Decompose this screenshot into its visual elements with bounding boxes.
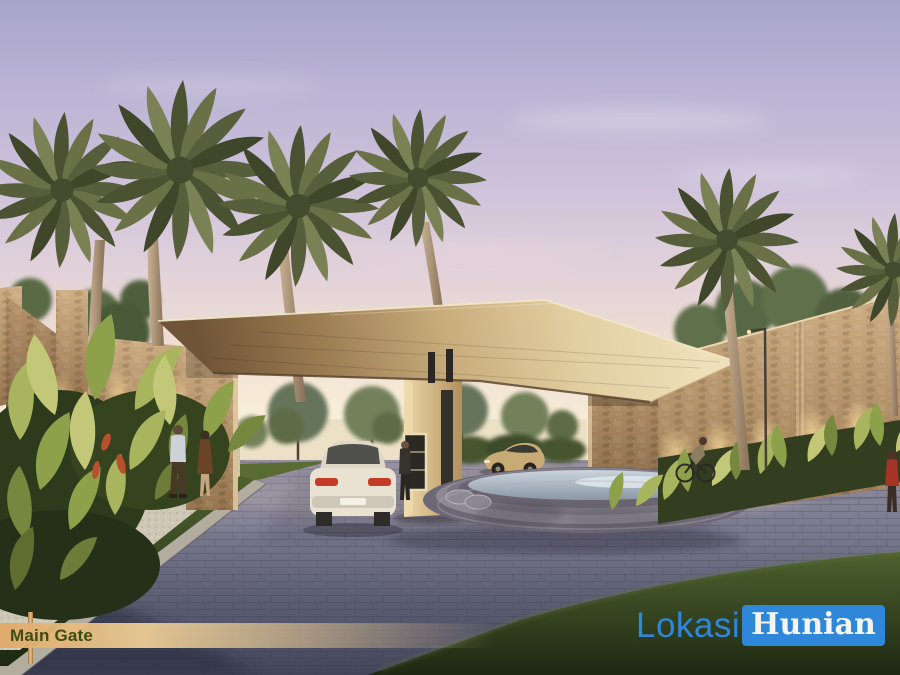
watermark-prefix: Lokasi (636, 606, 740, 646)
watermark: Lokasi Hunian (636, 604, 885, 647)
banner-label: Main Gate (0, 623, 520, 648)
scene-illustration (0, 0, 900, 675)
entrance-rendering: Main Gate Lokasi Hunian (0, 0, 900, 675)
taillight-left (315, 478, 338, 486)
taillight-right (368, 478, 391, 486)
main-gate-banner: Main Gate (0, 623, 520, 648)
watermark-suffix: Hunian (751, 607, 876, 642)
watermark-suffix-box: Hunian (742, 605, 885, 646)
